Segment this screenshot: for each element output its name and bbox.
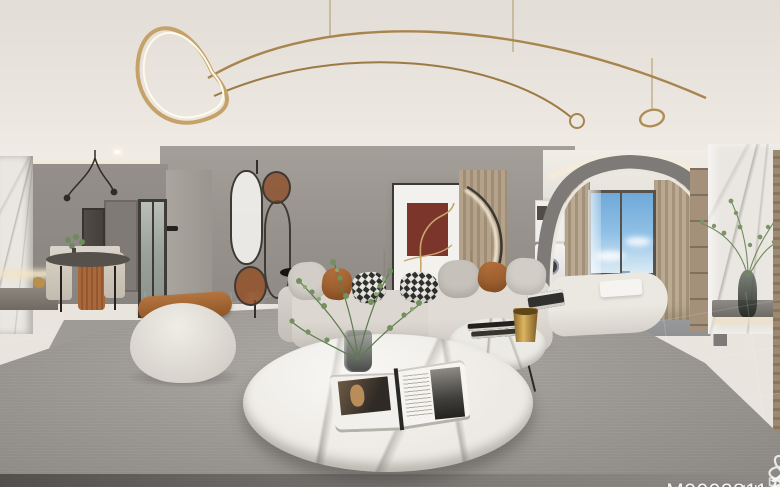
panorama-render: 多模网www.duomowang.com多模网www.duomowang.com…	[0, 0, 780, 487]
model-id-value: M0003811	[666, 480, 768, 487]
watermark-overlay: 多模网www.duomowang.com多模网www.duomowang.com…	[0, 0, 780, 487]
brand-name-en: DUOMOWANG	[768, 475, 780, 487]
watermark-pattern: 多模网www.duomowang.com多模网www.duomowang.com…	[0, 0, 780, 487]
